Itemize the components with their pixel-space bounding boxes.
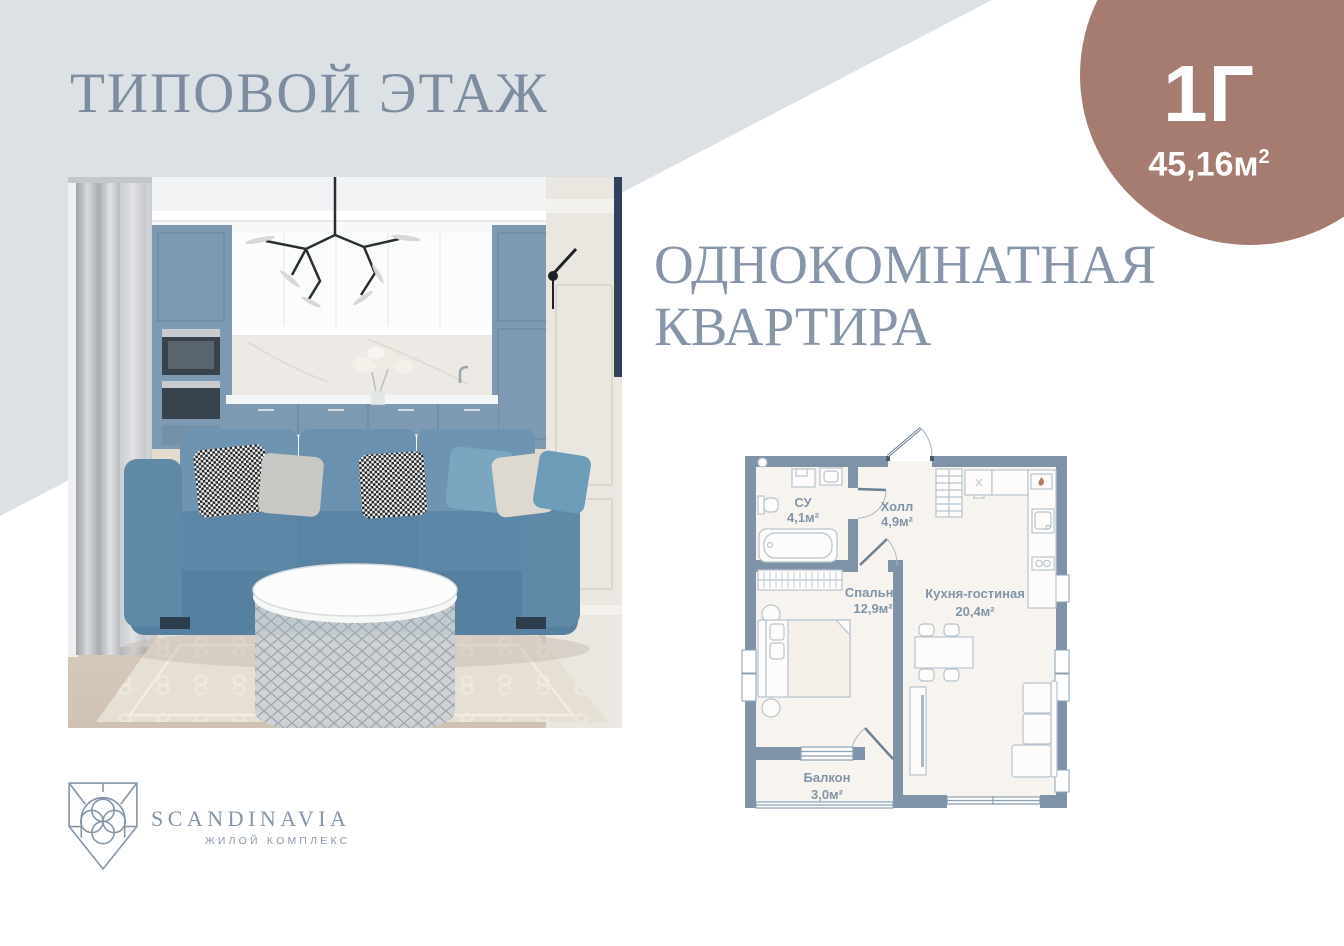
floorplan: СУ 4,1м² Холл 4,9м² Спальня 12,9м² Кухня… <box>740 425 1070 815</box>
kitchen-cabinets <box>150 225 554 449</box>
vent-icon <box>758 458 767 467</box>
vase <box>371 391 385 405</box>
counter <box>992 470 1028 495</box>
tv-unit-icon <box>910 687 926 775</box>
unit-area-value: 45,16м <box>1148 145 1258 183</box>
apartment-heading: ОДНОКОМНАТНАЯ КВАРТИРА <box>654 234 1156 358</box>
page-title: ТИПОВОЙ ЭТАЖ <box>70 64 549 124</box>
coffee-table <box>253 564 457 728</box>
toilet-icon <box>758 496 764 514</box>
bed-icon <box>758 620 850 697</box>
room-label-kitchen: Кухня-гостиная <box>925 586 1025 601</box>
interior-photo-illustration <box>68 177 622 728</box>
interior-photo <box>68 177 622 728</box>
room-area-kitchen: 20,4м² <box>955 604 995 619</box>
countertop <box>226 395 498 404</box>
room-label-bedroom: Спальня <box>845 585 901 600</box>
sofa-pillows <box>193 443 593 519</box>
unit-area: 45,16м2 <box>1080 139 1338 182</box>
room-area-hall: 4,9м² <box>881 514 914 529</box>
bedroom-wardrobe-icon <box>758 570 842 590</box>
apartment-heading-line1: ОДНОКОМНАТНАЯ <box>654 234 1156 296</box>
room-area-bedroom: 12,9м² <box>853 601 893 616</box>
room-label-hall: Холл <box>881 499 914 514</box>
wall-art <box>614 177 622 377</box>
unit-badge: 1Г 45,16м2 <box>1080 0 1344 245</box>
entrance-door-icon <box>886 428 934 461</box>
nightstand-icon <box>762 699 780 717</box>
pillow-pattern <box>358 451 428 519</box>
bedroom-window-icon <box>801 747 853 760</box>
logo-subtitle: ЖИЛОЙ КОМПЛЕКС <box>151 835 350 847</box>
room-area-su: 4,1м² <box>787 510 820 525</box>
room-area-balcony: 3,0м² <box>811 787 844 802</box>
pillow-teal <box>532 449 592 514</box>
logo-text: SCANDINAVIA ЖИЛОЙ КОМПЛЕКС <box>151 782 350 847</box>
room-label-balcony: Балкон <box>804 770 851 785</box>
counter-strip <box>1028 470 1056 608</box>
apartment-heading-line2: КВАРТИРА <box>654 296 1156 358</box>
unit-area-sup: 2 <box>1259 146 1270 168</box>
sofa-armrest <box>124 459 182 627</box>
wardrobe-icon <box>936 469 962 517</box>
brand-logo: SCANDINAVIA ЖИЛОЙ КОМПЛЕКС <box>68 782 350 870</box>
logo-shield-icon <box>68 782 138 870</box>
unit-badge-content: 1Г 45,16м2 <box>1080 55 1338 182</box>
floorplan-drawing: СУ 4,1м² Холл 4,9м² Спальня 12,9м² Кухня… <box>740 425 1070 815</box>
unit-number: 1Г <box>1080 55 1338 133</box>
pillow-gray <box>258 452 325 517</box>
crown-molding <box>128 211 558 220</box>
logo-name: SCANDINAVIA <box>151 806 350 832</box>
room-label-su: СУ <box>794 495 812 510</box>
